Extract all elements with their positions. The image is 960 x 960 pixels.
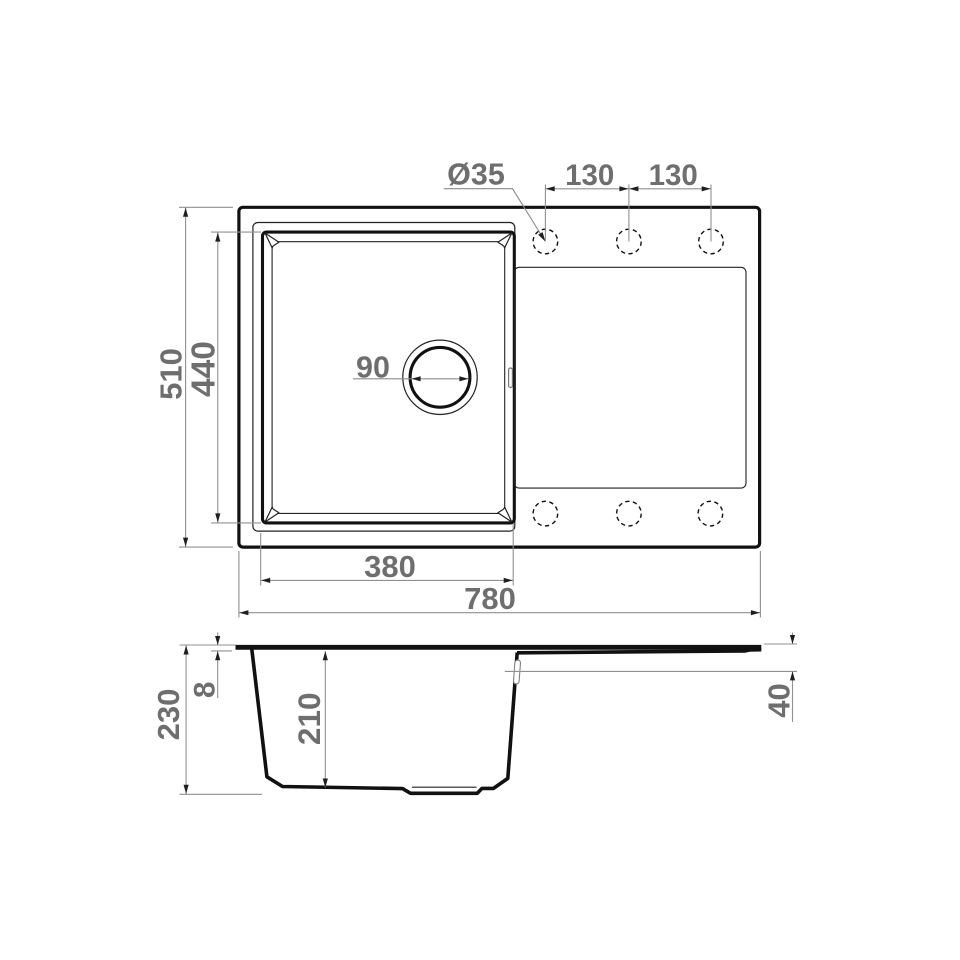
svg-text:90: 90 [356,351,390,385]
svg-text:440: 440 [185,341,222,397]
svg-text:8: 8 [189,682,222,698]
svg-text:380: 380 [364,549,416,584]
svg-text:130: 130 [649,159,698,192]
svg-text:40: 40 [762,683,797,717]
svg-text:230: 230 [151,689,186,741]
svg-text:780: 780 [464,581,516,616]
svg-text:Ø35: Ø35 [447,157,505,191]
svg-text:130: 130 [565,159,614,192]
svg-text:210: 210 [291,693,327,746]
svg-text:510: 510 [153,348,188,400]
